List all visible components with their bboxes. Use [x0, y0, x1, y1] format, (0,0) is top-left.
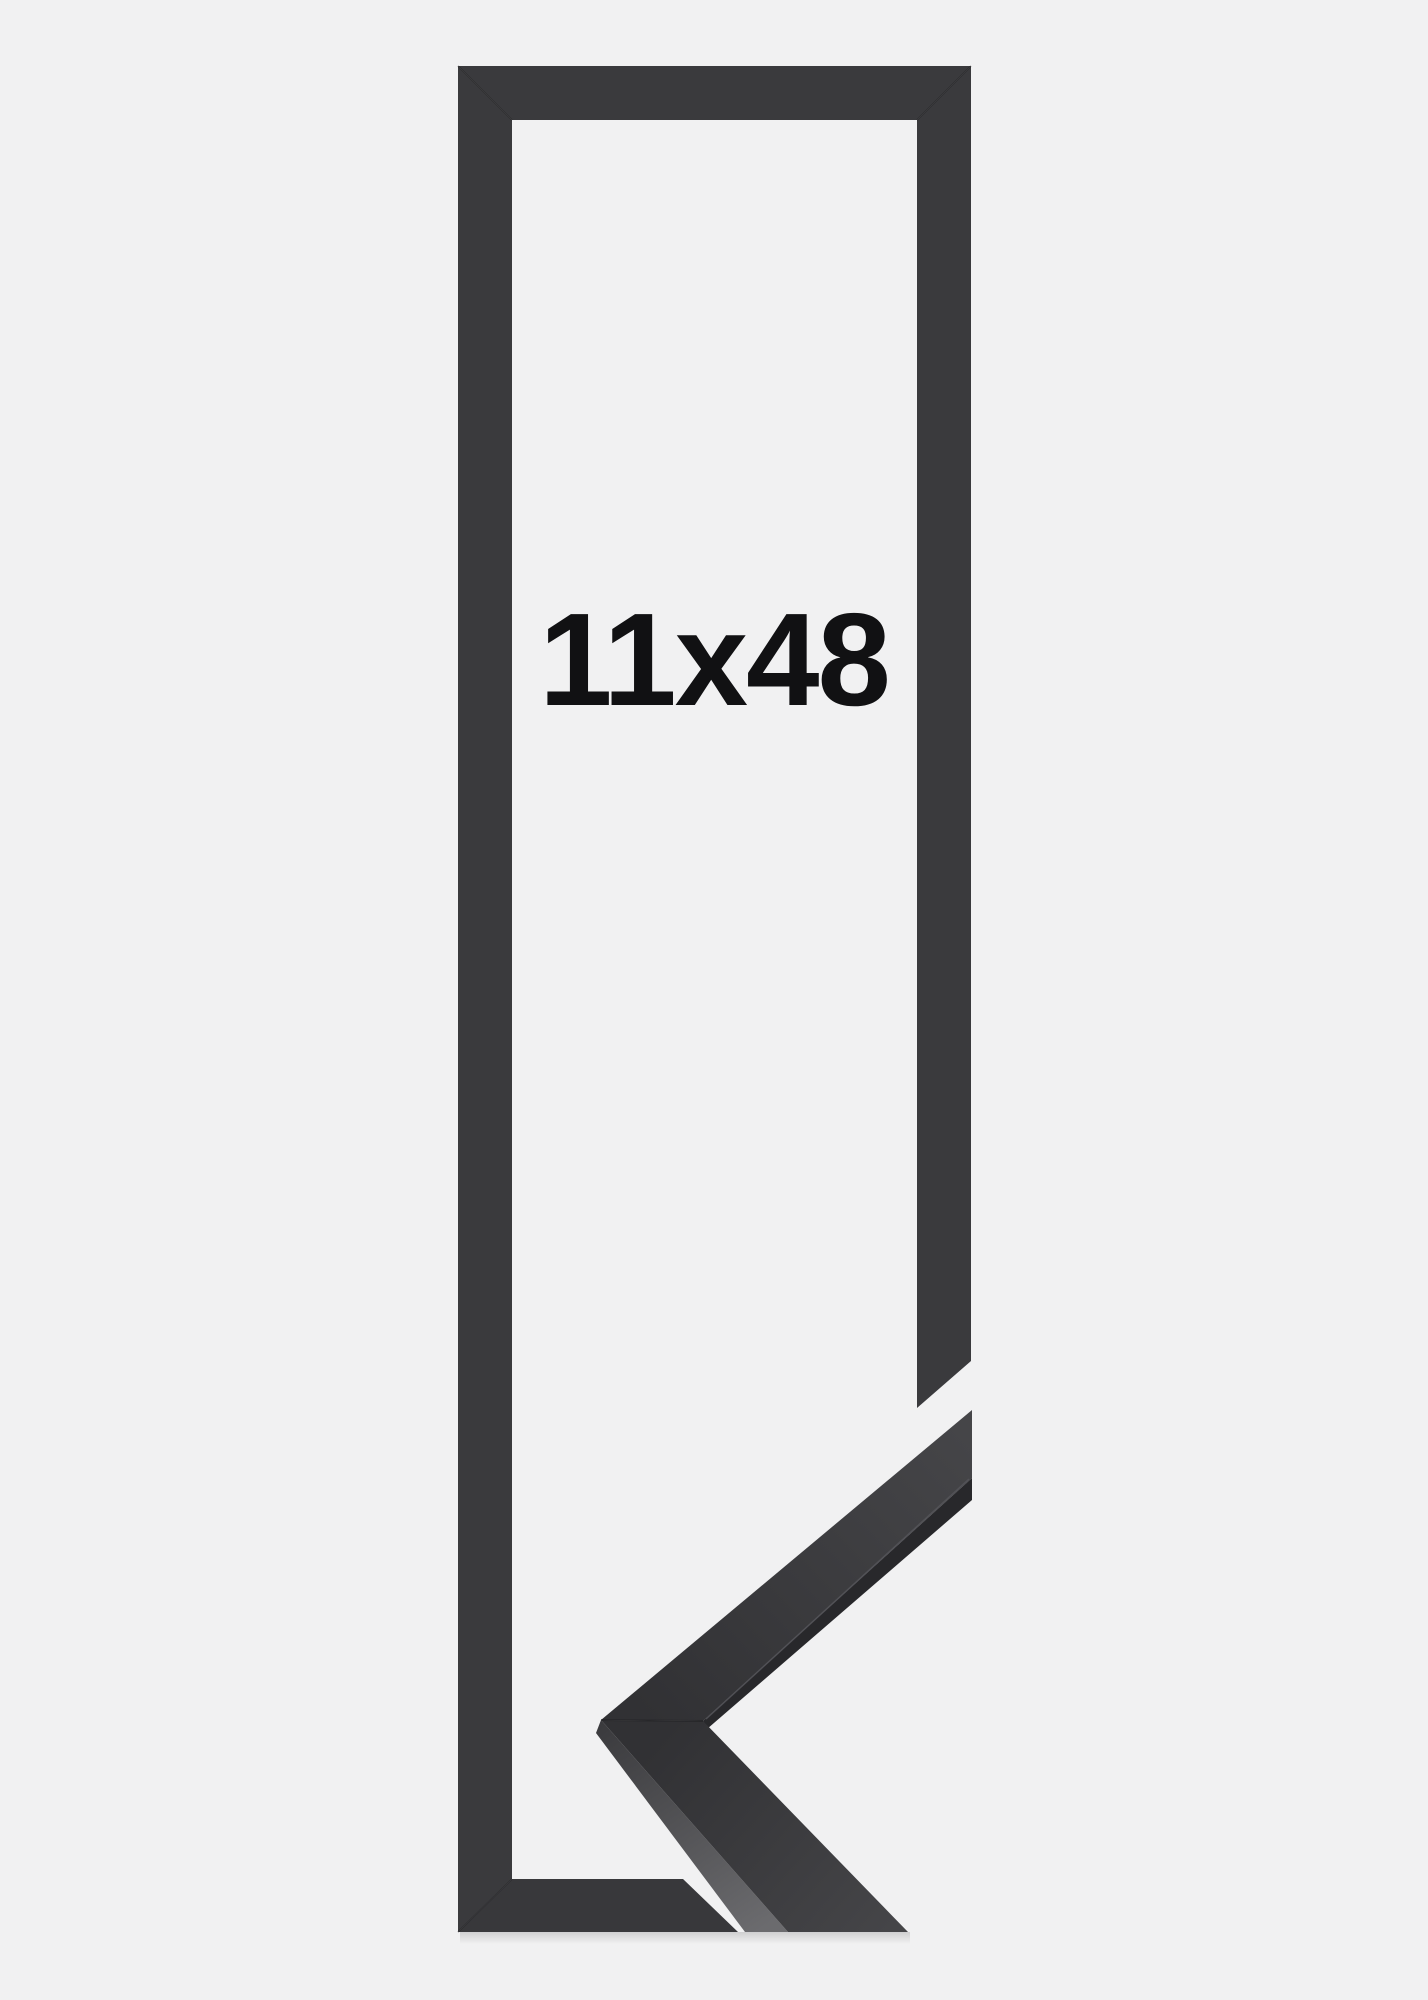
frame-top-bar: [458, 66, 971, 120]
size-label: 11x48: [0, 594, 1428, 726]
corner-mitre-seam: [601, 1720, 703, 1721]
frame-sample-graphic: [0, 0, 1428, 2000]
frame-right-bar: [917, 66, 971, 1408]
product-image-canvas: 11x48: [0, 0, 1428, 2000]
frame-left-bar: [458, 66, 512, 1932]
contact-shadow: [460, 1932, 910, 1944]
